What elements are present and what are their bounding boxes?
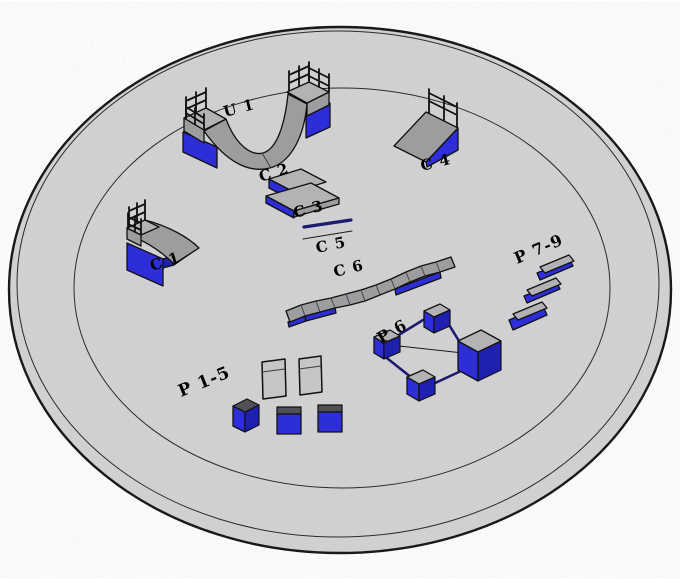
skatepark-layout-render: U 1 C 4 C 2 C 3 C 1 C 5 bbox=[0, 0, 680, 579]
cube bbox=[277, 407, 301, 434]
cube-front bbox=[277, 414, 301, 434]
cube bbox=[318, 405, 342, 432]
cube bbox=[233, 399, 259, 432]
scene-canvas: U 1 C 4 C 2 C 3 C 1 C 5 bbox=[0, 0, 680, 579]
tall-box bbox=[299, 356, 322, 395]
cube-top bbox=[318, 405, 342, 412]
cube-front bbox=[318, 412, 342, 432]
cube-top bbox=[277, 407, 301, 414]
ground-pad bbox=[9, 27, 671, 553]
tall-box-body bbox=[262, 359, 286, 399]
tall-box-body bbox=[299, 356, 322, 395]
tall-box bbox=[262, 359, 286, 399]
